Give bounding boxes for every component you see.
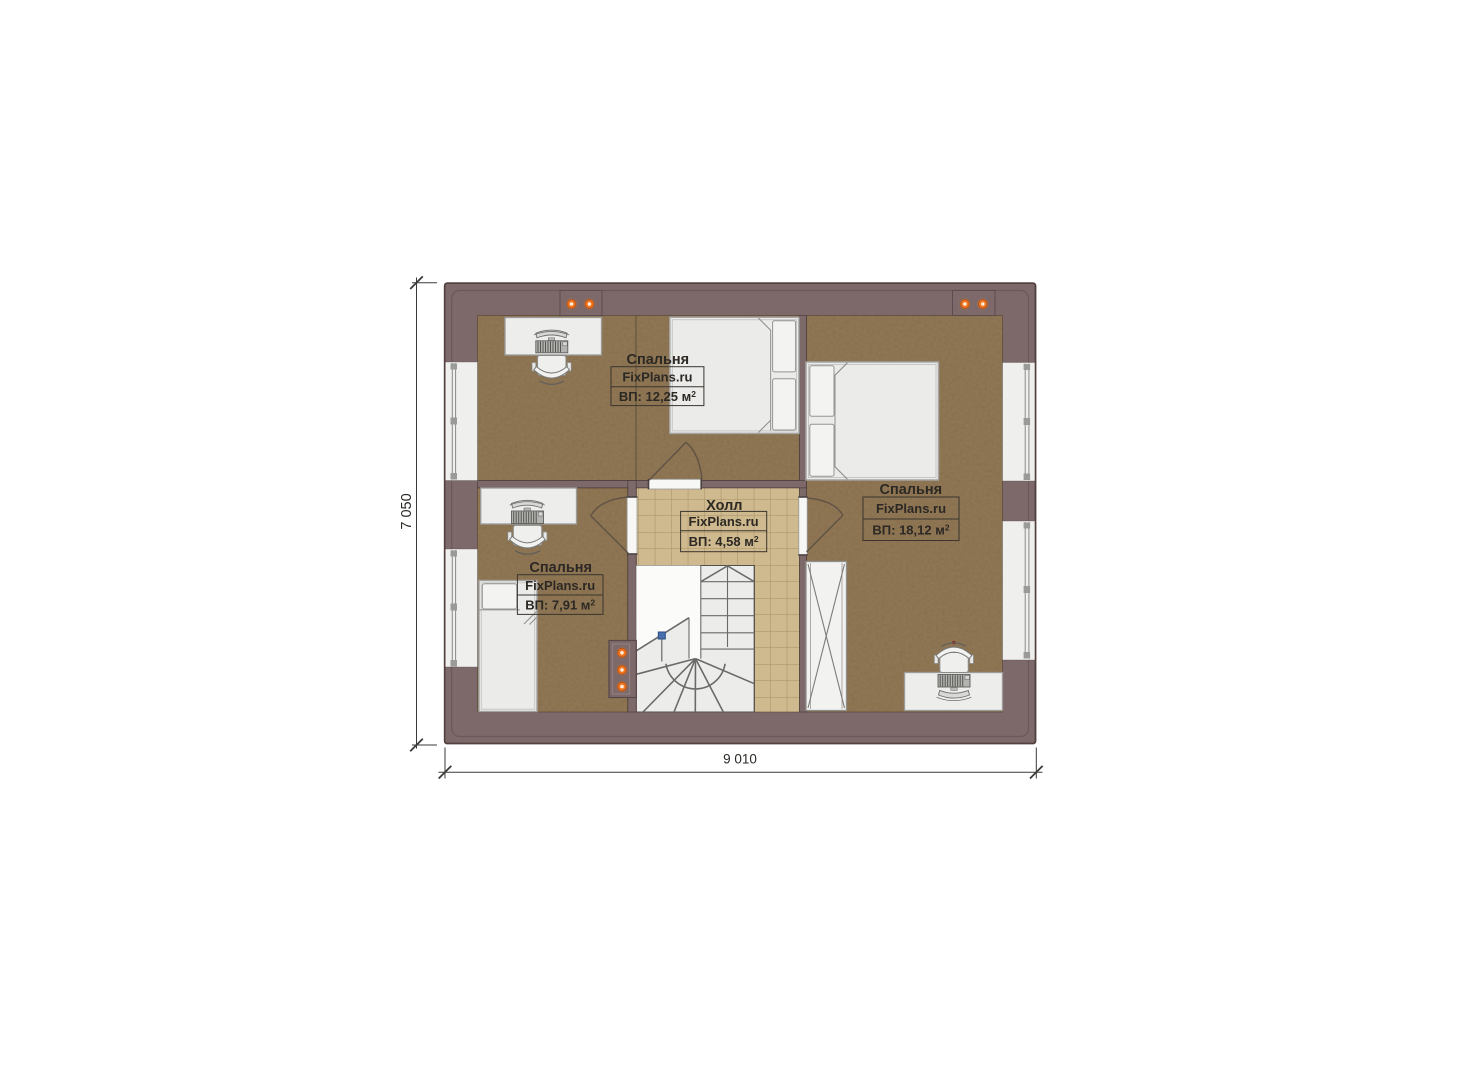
- svg-text:ВП: 7,91 м2: ВП: 7,91 м2: [525, 598, 595, 613]
- svg-text:9 010: 9 010: [723, 752, 757, 767]
- svg-text:FixPlans.ru: FixPlans.ru: [622, 369, 692, 384]
- svg-text:Спальня: Спальня: [626, 352, 689, 368]
- svg-text:ВП: 18,12 м2: ВП: 18,12 м2: [872, 523, 949, 538]
- svg-text:Спальня: Спальня: [879, 482, 942, 498]
- svg-text:ВП: 12,25 м2: ВП: 12,25 м2: [619, 389, 696, 404]
- svg-text:FixPlans.ru: FixPlans.ru: [525, 578, 595, 593]
- svg-text:7 050: 7 050: [399, 493, 415, 529]
- svg-text:FixPlans.ru: FixPlans.ru: [689, 514, 759, 529]
- svg-text:Спальня: Спальня: [529, 560, 592, 576]
- svg-text:ВП: 4,58 м2: ВП: 4,58 м2: [689, 534, 759, 549]
- svg-text:FixPlans.ru: FixPlans.ru: [876, 501, 946, 516]
